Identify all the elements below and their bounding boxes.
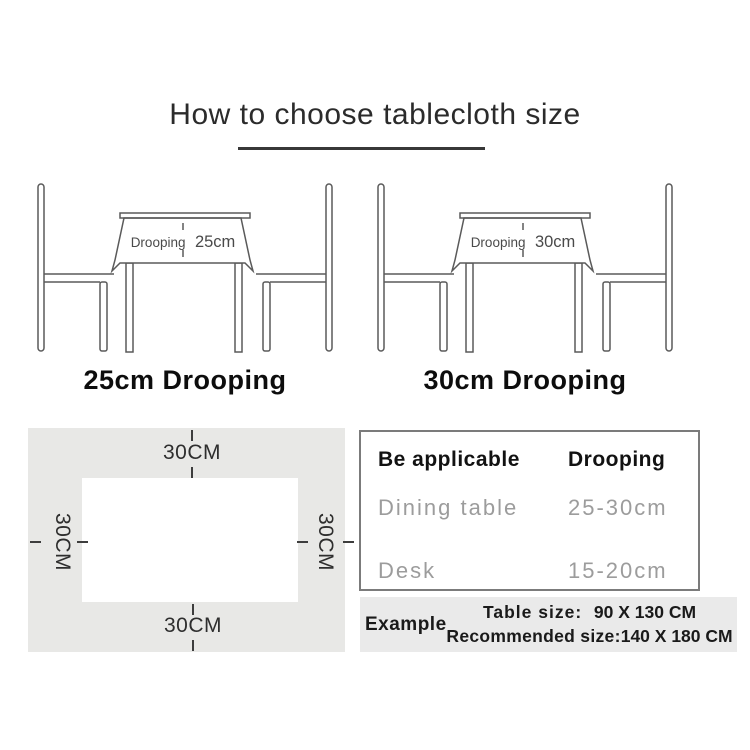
table-scene-30cm: Drooping 30cm — [365, 170, 685, 355]
table-top-rect — [82, 478, 298, 602]
drooping-spec-table: Be applicable Drooping Dining table 25-3… — [359, 430, 700, 591]
measure-dash — [343, 541, 354, 543]
margin-label-left: 30CM — [50, 513, 74, 571]
droop-annotation: Drooping 30cm — [471, 233, 576, 251]
margin-label-top: 30CM — [163, 441, 221, 465]
example-table-size-label: Table size: — [483, 602, 582, 622]
measure-dash — [192, 640, 194, 651]
chair-right-icon — [256, 184, 332, 351]
chair-left-icon — [378, 184, 454, 351]
spec-row-name: Dining table — [378, 495, 518, 521]
spec-row-value: 25-30cm — [568, 495, 668, 521]
measure-dash — [77, 541, 88, 543]
measure-dash — [191, 430, 193, 441]
page-title: How to choose tablecloth size — [0, 98, 750, 132]
title-underline — [238, 147, 485, 150]
measure-dash — [30, 541, 41, 543]
example-table-size-value: 90 X 130 CM — [594, 602, 696, 622]
chair-right-icon — [596, 184, 672, 351]
spec-row-value: 15-20cm — [568, 558, 668, 584]
example-recommended-size: Recommended size:140 X 180 CM — [442, 626, 737, 647]
spec-row-name: Desk — [378, 558, 436, 584]
margin-label-right: 30CM — [313, 513, 337, 571]
table-scene-25cm: Drooping 25cm — [25, 170, 345, 355]
caption-30cm-drooping: 30cm Drooping — [365, 365, 685, 396]
example-table-size: Table size: 90 X 130 CM — [442, 602, 737, 623]
droop-annotation: Drooping 25cm — [131, 233, 236, 251]
example-label: Example — [365, 614, 447, 636]
tablecloth-size-infographic: How to choose tablecloth size Drooping 2… — [0, 0, 750, 750]
example-lines: Table size: 90 X 130 CM Recommended size… — [442, 597, 737, 652]
spec-header-drooping: Drooping — [568, 448, 665, 472]
caption-25cm-drooping: 25cm Drooping — [25, 365, 345, 396]
tablecloth-margin-diagram: 30CM 30CM 30CM 30CM — [28, 428, 345, 652]
measure-dash — [191, 467, 193, 478]
example-recommended-size-value: 140 X 180 CM — [621, 626, 733, 646]
chair-left-icon — [38, 184, 114, 351]
spec-header-applicable: Be applicable — [378, 448, 520, 472]
margin-label-bottom: 30CM — [164, 614, 222, 638]
example-strip: Example Table size: 90 X 130 CM Recommen… — [360, 597, 737, 652]
example-recommended-size-label: Recommended size: — [446, 626, 620, 646]
measure-dash — [297, 541, 308, 543]
